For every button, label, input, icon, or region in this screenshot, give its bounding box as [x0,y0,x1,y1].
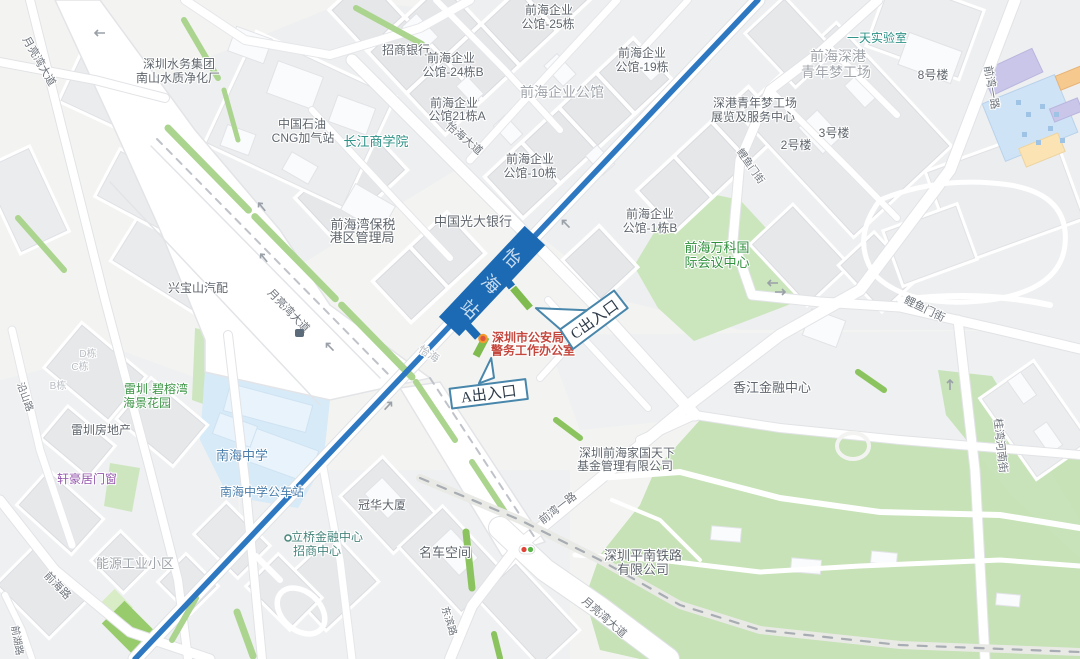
svg-text:2号楼: 2号楼 [781,137,812,152]
svg-text:前海企业公馆: 前海企业公馆 [520,84,604,100]
svg-text:公馆-10栋: 公馆-10栋 [503,165,556,180]
svg-text:公馆21栋A: 公馆21栋A [428,108,485,123]
svg-text:前海企业: 前海企业 [618,45,666,60]
svg-text:公馆-24栋B: 公馆-24栋B [422,64,483,79]
svg-text:南山水质净化厂: 南山水质净化厂 [136,70,220,85]
svg-text:雷圳·碧榕湾: 雷圳·碧榕湾 [124,381,188,396]
svg-text:前海企业: 前海企业 [626,206,674,221]
svg-text:3号楼: 3号楼 [819,125,850,140]
svg-text:公馆-19栋: 公馆-19栋 [615,59,668,74]
svg-text:C栋: C栋 [71,360,88,373]
svg-text:一天实验室: 一天实验室 [847,30,907,45]
svg-text:前海深港: 前海深港 [810,48,866,64]
svg-text:深圳水务集团: 深圳水务集团 [143,56,215,71]
svg-text:深圳市公安局: 深圳市公安局 [492,330,564,345]
svg-text:青年梦工场: 青年梦工场 [801,64,871,80]
svg-text:深港青年梦工场: 深港青年梦工场 [713,96,797,110]
svg-text:招商银行: 招商银行 [382,42,430,57]
svg-text:立桥金融中心: 立桥金融中心 [291,529,363,544]
svg-text:轩豪居门窗: 轩豪居门窗 [57,471,117,486]
svg-text:冠华大厦: 冠华大厦 [358,498,406,512]
svg-text:港区管理局: 港区管理局 [329,230,394,245]
svg-text:深圳平南铁路: 深圳平南铁路 [604,548,682,563]
svg-text:公馆-1栋B: 公馆-1栋B [623,220,678,235]
svg-text:B栋: B栋 [50,379,67,392]
svg-text:中国光大银行: 中国光大银行 [434,214,512,229]
svg-text:雷圳房地产: 雷圳房地产 [71,422,131,437]
svg-text:前海万科国: 前海万科国 [684,240,749,255]
svg-text:南海中学: 南海中学 [216,448,268,463]
svg-text:D栋: D栋 [79,347,96,360]
svg-text:名车空间: 名车空间 [419,545,471,560]
svg-text:能源工业小区: 能源工业小区 [96,556,174,571]
svg-text:前海企业: 前海企业 [506,151,554,166]
svg-text:招商中心: 招商中心 [293,543,341,558]
svg-text:展览及服务中心: 展览及服务中心 [711,109,795,124]
svg-text:深圳前海家国天下: 深圳前海家国天下 [579,445,675,460]
svg-text:长江商学院: 长江商学院 [343,134,408,149]
svg-text:南海中学公车站: 南海中学公车站 [220,484,304,499]
svg-text:有限公司: 有限公司 [617,562,669,577]
svg-text:兴宝山汽配: 兴宝山汽配 [168,280,228,295]
svg-text:基金管理有限公司: 基金管理有限公司 [577,458,673,473]
svg-text:海景花园: 海景花园 [123,395,171,410]
svg-text:际会议中心: 际会议中心 [684,255,749,270]
svg-text:香江金融中心: 香江金融中心 [733,380,811,395]
svg-text:前海企业: 前海企业 [430,95,478,110]
svg-text:中国石油: 中国石油 [278,116,326,131]
svg-text:8号楼: 8号楼 [918,67,949,82]
svg-text:CNG加气站: CNG加气站 [272,130,335,145]
svg-text:前海企业: 前海企业 [427,50,475,65]
svg-text:前海企业: 前海企业 [525,2,573,17]
svg-text:公馆-25栋: 公馆-25栋 [521,16,574,31]
svg-text:警务工作办公室: 警务工作办公室 [490,343,575,358]
